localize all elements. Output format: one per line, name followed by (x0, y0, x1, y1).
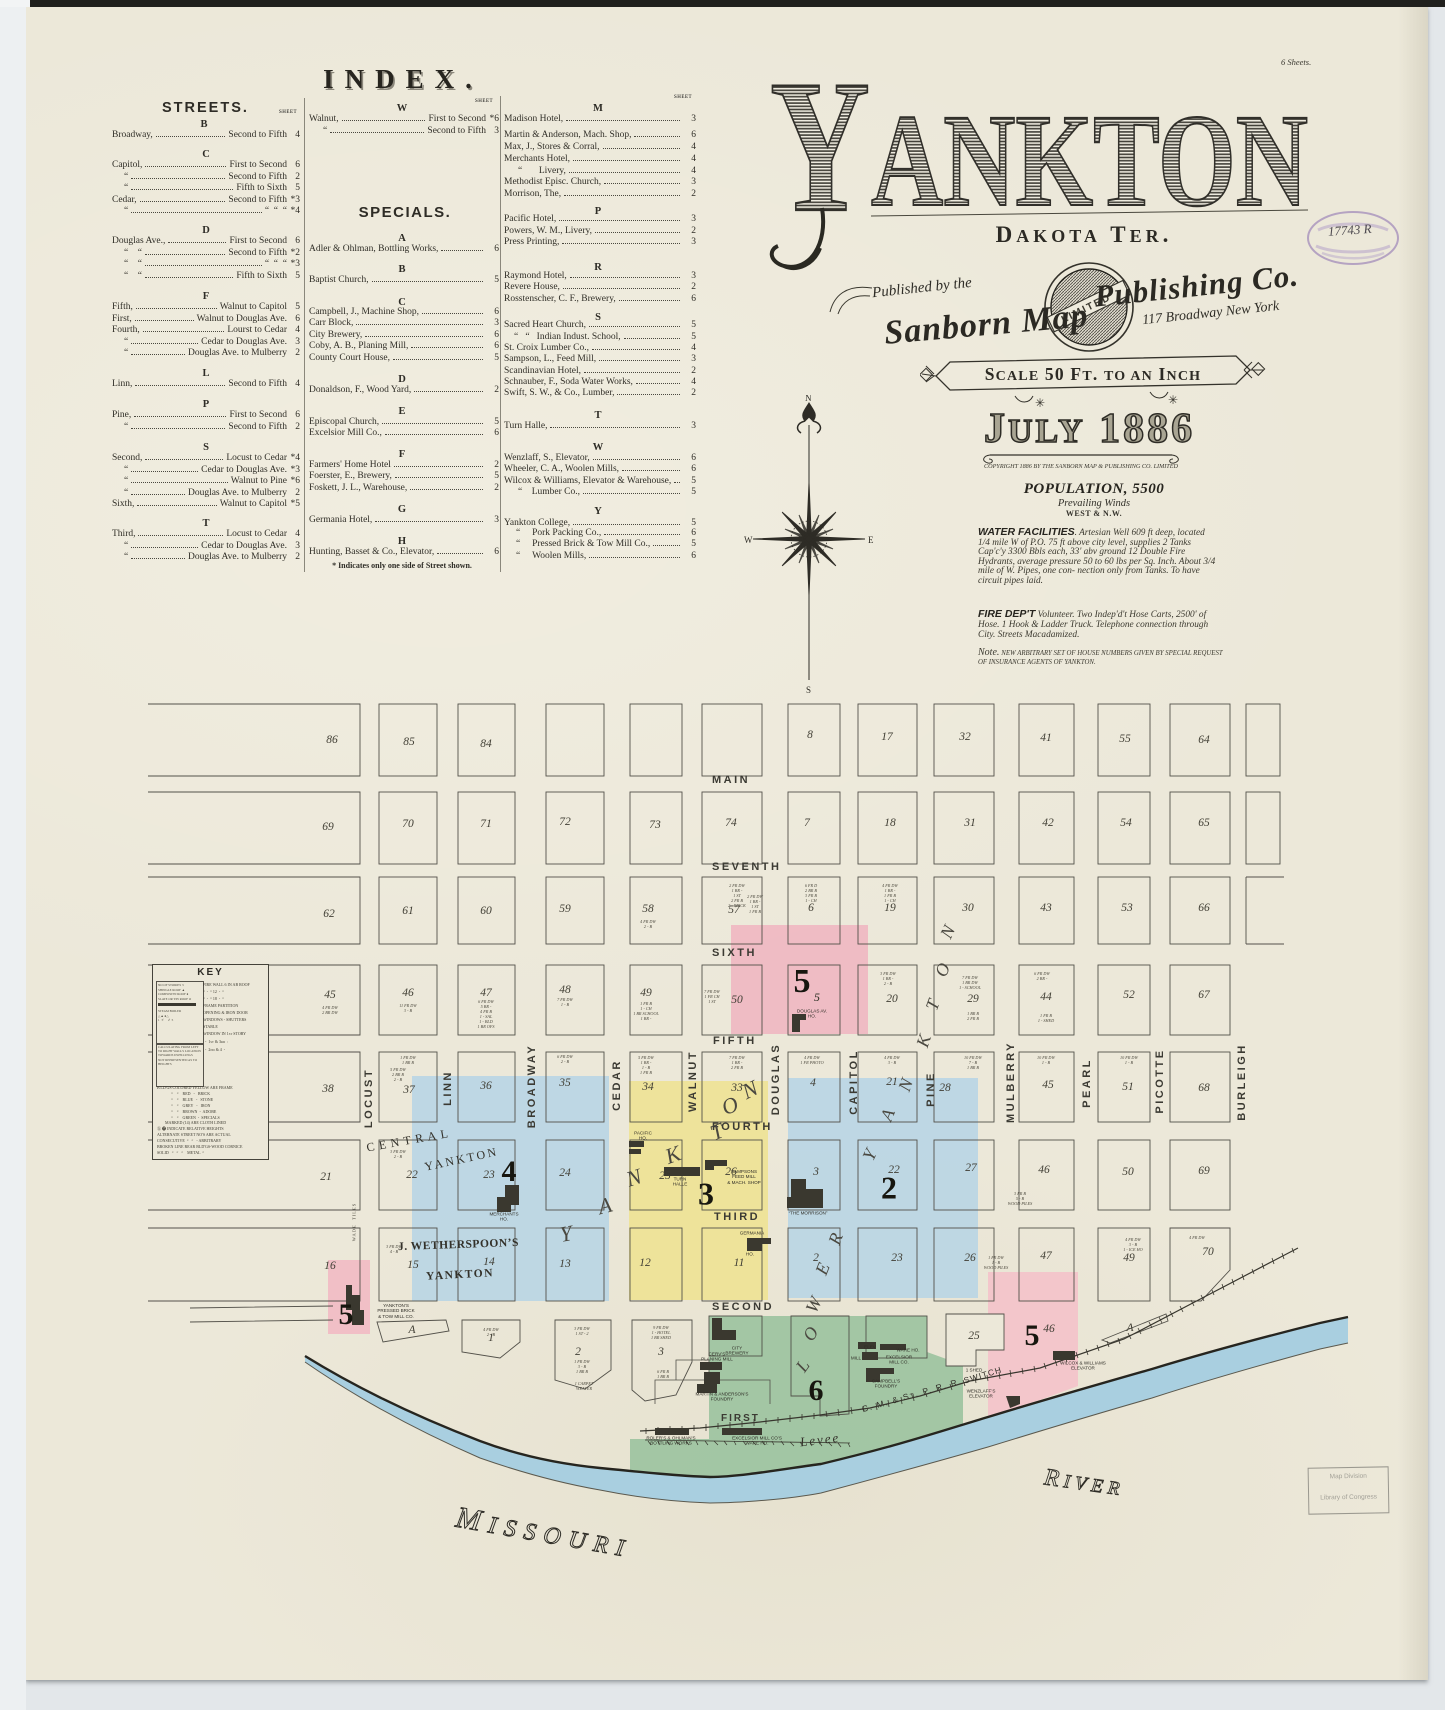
svg-text:Y: Y (770, 42, 870, 252)
svg-text:N: N (805, 395, 812, 403)
svg-text:W: W (744, 535, 753, 545)
svg-text:ANKTON: ANKTON (871, 86, 1308, 234)
svg-text:17743 R: 17743 R (1327, 221, 1372, 239)
svg-text:E: E (868, 535, 874, 545)
svg-text:JULY 1886: JULY 1886 (984, 406, 1195, 452)
svg-text:S: S (806, 685, 811, 695)
svg-text:SCALE 50 FT. TO AN INCH: SCALE 50 FT. TO AN INCH (985, 364, 1202, 384)
svg-text:COPYRIGHT 1886 BY THE SANBORN: COPYRIGHT 1886 BY THE SANBORN MAP & PUBL… (984, 463, 1179, 470)
